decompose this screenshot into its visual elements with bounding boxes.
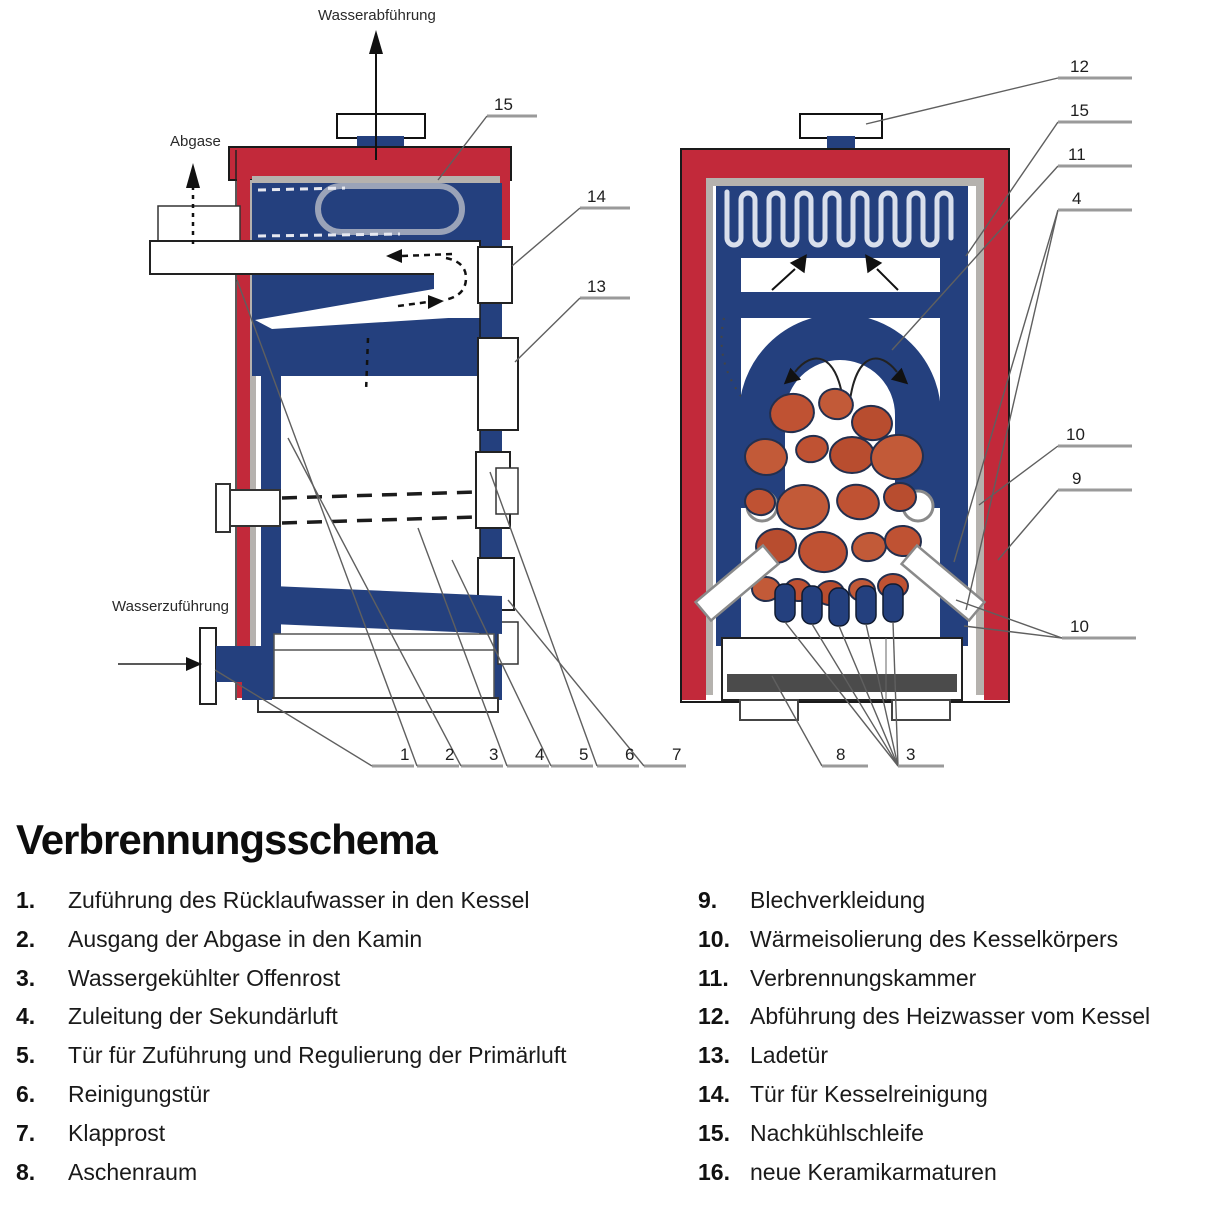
callout-15-left: 15 xyxy=(494,95,513,114)
callout-10-lower: 10 xyxy=(1070,617,1089,636)
legend-column-right: 9.Blechverkleidung 10.Wärmeisolierung de… xyxy=(698,886,1208,1196)
legend-item: 15.Nachkühlschleife xyxy=(698,1119,1208,1158)
callout-15-right: 15 xyxy=(1070,101,1089,120)
callout-6: 6 xyxy=(625,745,634,764)
right-chimney-flange xyxy=(800,114,882,138)
legend-text: Aschenraum xyxy=(68,1158,197,1186)
legend-number: 15. xyxy=(698,1119,750,1147)
scanned-boiler-schematic-page: Wasserabführung Abgase Wasserzuführung 1… xyxy=(0,0,1214,1214)
legend-text: Ausgang der Abgase in den Kamin xyxy=(68,925,422,953)
legend-text: Wärmeisolierung des Kesselkörpers xyxy=(750,925,1118,953)
legend-number: 12. xyxy=(698,1002,750,1030)
legend-number: 4. xyxy=(16,1002,68,1030)
legend-number: 10. xyxy=(698,925,750,953)
legend-number: 3. xyxy=(16,964,68,992)
legend-number: 14. xyxy=(698,1080,750,1108)
callout-10-upper: 10 xyxy=(1066,425,1085,444)
legend-number: 16. xyxy=(698,1158,750,1186)
legend-item: 13.Ladetür xyxy=(698,1041,1208,1080)
callout-13: 13 xyxy=(587,277,606,296)
legend-item: 6.Reinigungstür xyxy=(16,1080,676,1119)
legend-text: Zuleitung der Sekundärluft xyxy=(68,1002,338,1030)
legend-item: 14.Tür für Kesselreinigung xyxy=(698,1080,1208,1119)
legend-item: 11.Verbrennungskammer xyxy=(698,964,1208,1003)
exhaust-duct xyxy=(150,241,480,274)
legend-text: Abführung des Heizwasser vom Kessel xyxy=(750,1002,1150,1030)
legend-text: Tür für Kesselreinigung xyxy=(750,1080,988,1108)
legend-item: 2.Ausgang der Abgase in den Kamin xyxy=(16,925,676,964)
legend-text: Zuführung des Rücklaufwasser in den Kess… xyxy=(68,886,530,914)
legend-number: 1. xyxy=(16,886,68,914)
page-title: Verbrennungsschema xyxy=(16,816,437,864)
left-chimney-flange xyxy=(337,114,425,138)
legend-text: Reinigungstür xyxy=(68,1080,210,1108)
legend-column-left: 1.Zuführung des Rücklaufwasser in den Ke… xyxy=(16,886,676,1196)
callout-3-left: 3 xyxy=(489,745,498,764)
label-water-in: Wasserzuführung xyxy=(112,598,229,615)
callout-3-right: 3 xyxy=(906,745,915,764)
callout-2: 2 xyxy=(445,745,454,764)
callout-7: 7 xyxy=(672,745,681,764)
legend-text: Ladetür xyxy=(750,1041,828,1069)
legend-item: 10.Wärmeisolierung des Kesselkörpers xyxy=(698,925,1208,964)
legend-text: Tür für Zuführung und Regulierung der Pr… xyxy=(68,1041,567,1069)
label-exhaust: Abgase xyxy=(170,133,221,150)
boiler-diagram: Wasserabführung Abgase Wasserzuführung 1… xyxy=(0,0,1214,812)
legend-text: Klapprost xyxy=(68,1119,165,1147)
legend-number: 7. xyxy=(16,1119,68,1147)
exhaust-arrow xyxy=(186,163,200,188)
callout-14: 14 xyxy=(587,187,606,206)
legend-item: 9.Blechverkleidung xyxy=(698,886,1208,925)
water-inlet-pipe xyxy=(216,646,272,700)
legend-item: 5.Tür für Zuführung und Regulierung der … xyxy=(16,1041,676,1080)
legend-number: 9. xyxy=(698,886,750,914)
legend-text: Nachkühlschleife xyxy=(750,1119,924,1147)
callout-1: 1 xyxy=(400,745,409,764)
legend-item: 16.neue Keramikarmaturen xyxy=(698,1158,1208,1197)
legend-number: 6. xyxy=(16,1080,68,1108)
water-out-arrow xyxy=(369,30,383,54)
legend-text: Verbrennungskammer xyxy=(750,964,976,992)
callout-4-left: 4 xyxy=(535,745,544,764)
callout-8: 8 xyxy=(836,745,845,764)
legend-number: 5. xyxy=(16,1041,68,1069)
legend-text: neue Keramikarmaturen xyxy=(750,1158,997,1186)
legend-number: 13. xyxy=(698,1041,750,1069)
legend-item: 12.Abführung des Heizwasser vom Kessel xyxy=(698,1002,1208,1041)
legend-item: 4.Zuleitung der Sekundärluft xyxy=(16,1002,676,1041)
callout-4-right: 4 xyxy=(1072,189,1081,208)
legend-item: 3.Wassergekühlter Offenrost xyxy=(16,964,676,1003)
label-water-out: Wasserabführung xyxy=(318,7,436,24)
legend-item: 7.Klapprost xyxy=(16,1119,676,1158)
ash-layer xyxy=(727,674,957,692)
callout-12: 12 xyxy=(1070,57,1089,76)
legend-number: 8. xyxy=(16,1158,68,1186)
legend-number: 2. xyxy=(16,925,68,953)
legend-text: Blechverkleidung xyxy=(750,886,925,914)
legend-item: 8.Aschenraum xyxy=(16,1158,676,1197)
legend-number: 11. xyxy=(698,964,750,992)
legend-item: 1.Zuführung des Rücklaufwasser in den Ke… xyxy=(16,886,676,925)
water-inlet-flange xyxy=(200,628,216,704)
callout-5: 5 xyxy=(579,745,588,764)
right-boiler-section xyxy=(681,114,1009,720)
legend-text: Wassergekühlter Offenrost xyxy=(68,964,340,992)
callout-11: 11 xyxy=(1068,145,1086,164)
callout-9: 9 xyxy=(1072,469,1081,488)
sheet-cladding-left xyxy=(682,150,706,700)
